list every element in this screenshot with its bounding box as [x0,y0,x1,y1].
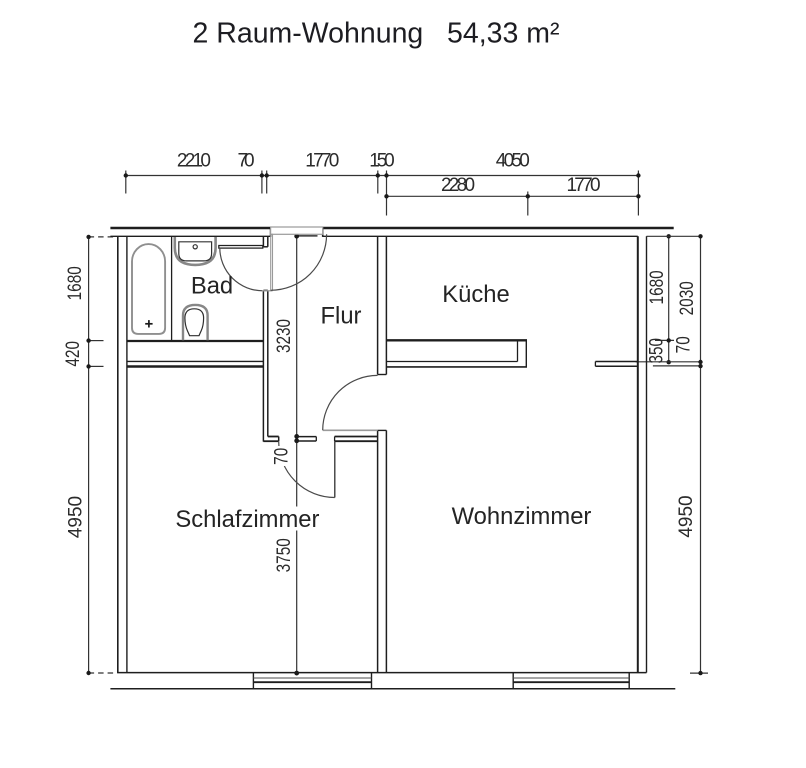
svg-text:3750: 3750 [272,538,294,572]
svg-text:3230: 3230 [272,319,294,353]
svg-text:1680: 1680 [63,266,85,300]
svg-text:70: 70 [672,336,694,353]
svg-text:350: 350 [645,338,667,364]
svg-text:1770: 1770 [566,175,600,196]
svg-text:Küche: Küche [442,281,509,308]
svg-text:Flur: Flur [321,303,362,330]
svg-text:4050: 4050 [496,150,530,171]
svg-text:70: 70 [270,448,292,465]
svg-text:1770: 1770 [305,150,339,171]
svg-text:2030: 2030 [675,281,697,315]
svg-text:420: 420 [61,341,83,367]
svg-text:150: 150 [369,150,395,171]
svg-text:Wohnzimmer: Wohnzimmer [452,503,592,530]
svg-text:2 Raum-Wohnung 54,33 m²: 2 Raum-Wohnung 54,33 m² [193,18,560,50]
svg-text:Schlafzimmer: Schlafzimmer [175,506,319,533]
svg-text:4950: 4950 [65,496,86,538]
svg-text:Bad: Bad [191,273,233,300]
svg-text:70: 70 [237,150,254,171]
svg-text:1680: 1680 [645,270,667,304]
svg-text:4950: 4950 [676,495,697,537]
svg-text:2210: 2210 [177,150,211,171]
svg-text:2280: 2280 [441,175,475,196]
